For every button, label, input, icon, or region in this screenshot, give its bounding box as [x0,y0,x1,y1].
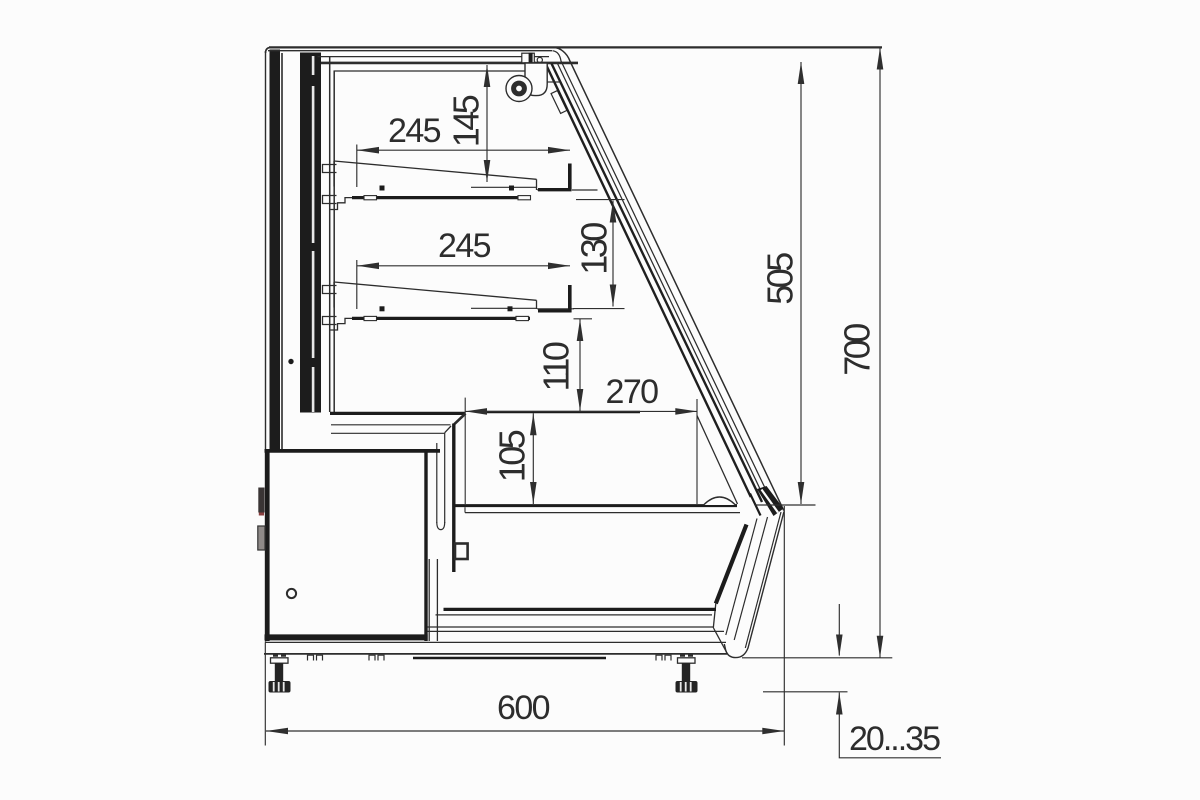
svg-text:110: 110 [536,342,577,391]
svg-text:105: 105 [492,430,533,482]
svg-text:600: 600 [497,689,550,727]
svg-text:505: 505 [760,253,801,305]
svg-text:130: 130 [574,223,615,275]
svg-text:270: 270 [606,373,659,411]
svg-text:700: 700 [837,324,878,376]
svg-text:245: 245 [388,112,441,150]
svg-text:20...35: 20...35 [849,720,940,758]
svg-text:245: 245 [438,227,491,265]
svg-text:145: 145 [446,95,487,147]
